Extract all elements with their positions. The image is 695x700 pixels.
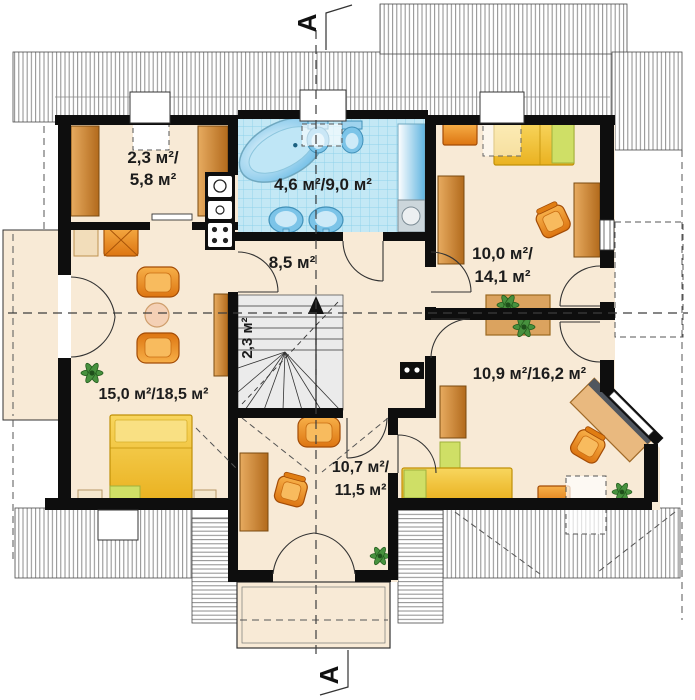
right-balcony-outline — [615, 222, 683, 337]
window-right-wall — [600, 220, 614, 250]
room-area-label-bedroom2: 10,9 м²/16,2 м² — [452, 366, 607, 383]
bottom-balcony — [237, 582, 390, 648]
room-area-label-room-bottom-line2: 11,5 м² — [318, 483, 403, 500]
section-marker-bottom: A — [314, 660, 344, 690]
skylight-bathroom — [302, 124, 342, 146]
desk-room-bottom — [240, 453, 268, 531]
room-area-label-bedroom1-line2: 14,1 м² — [455, 268, 550, 286]
appliance-stack — [208, 176, 232, 247]
armchair-2 — [137, 333, 179, 363]
room-area-label-bedroom1-line1: 10,0 м²/ — [455, 245, 550, 263]
toilet-2 — [341, 121, 363, 153]
armchair — [137, 267, 179, 297]
bed-bedroom-2 — [402, 468, 512, 500]
room-area-label-staircase: 2,3 м² — [240, 308, 256, 368]
room-area-label-wardrobe-line1: 2,3 м²/ — [118, 149, 188, 167]
desk-bedroom-1 — [574, 183, 600, 257]
floor-plan-drawing — [0, 0, 695, 700]
wardrobe-bedroom-2 — [440, 386, 466, 438]
section-marker-top: A — [292, 8, 322, 38]
room-area-label-living: 15,0 м²/18,5 м² — [86, 387, 221, 404]
closet-left — [71, 126, 99, 216]
room-area-label-hall: 8,5 м² — [252, 254, 332, 272]
skylight-wardrobe — [133, 122, 169, 150]
armchair-3 — [298, 417, 340, 447]
left-balcony — [3, 230, 65, 420]
shower-glass — [398, 124, 425, 200]
side-table — [74, 226, 98, 256]
floor-plan-image: A A 2,3 м²/ 5,8 м² 4,6 м²/9,0 м² 8,5 м² … — [0, 0, 695, 700]
skylight-bedroom-1 — [483, 122, 521, 156]
nightstand-bedroom-1 — [443, 123, 477, 145]
room-area-label-bathroom: 4,6 м²/9,0 м² — [258, 176, 388, 194]
tall-cabinet — [214, 294, 228, 376]
chimney — [400, 362, 424, 379]
shower-tray — [398, 200, 425, 232]
room-area-label-wardrobe-line2: 5,8 м² — [118, 171, 188, 189]
door-leaf-wardrobe — [152, 214, 192, 220]
round-table — [145, 303, 169, 327]
room-area-label-room-bottom-line1: 10,7 м²/ — [318, 460, 403, 477]
